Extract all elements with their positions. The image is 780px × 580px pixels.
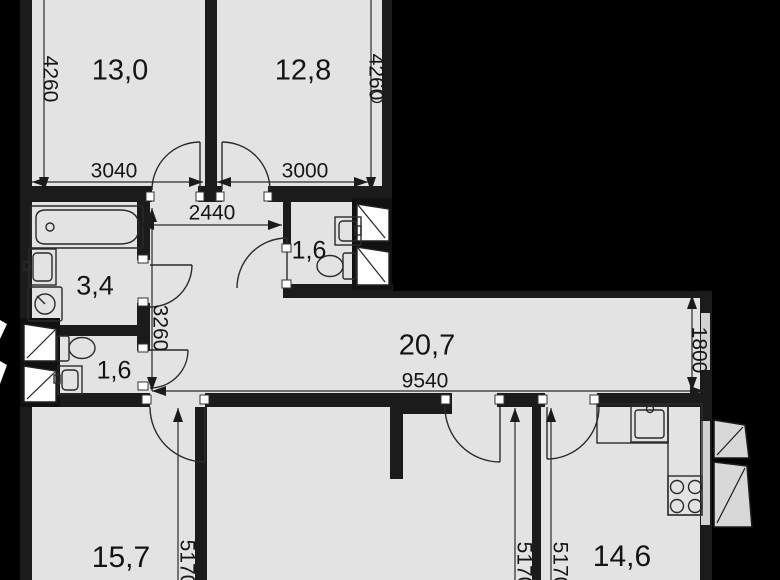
room-label-bedroom3: 15,7 [92, 543, 150, 573]
room-label-kitchen: 14,6 [593, 542, 651, 572]
dim-kitchen-depth: 5170 [550, 542, 571, 580]
dim-bedroom1-width: 3040 [91, 161, 138, 182]
floor-plan-drawing [0, 0, 780, 580]
room-label-bedroom2: 12,8 [275, 57, 331, 86]
dim-bedroom3-depth: 5170 [177, 540, 198, 580]
dim-hall-depth: 3260 [150, 305, 171, 352]
room-label-bathroom: 3,4 [76, 273, 114, 300]
room-label-wc-top: 1,6 [292, 239, 327, 264]
dim-living-depth: 1800 [689, 327, 710, 374]
room-label-wc-bottom: 1,6 [97, 359, 132, 384]
dim-bedroom1-depth: 4260 [40, 56, 61, 103]
dim-bedroom2-depth: 4260 [366, 54, 387, 101]
room-label-living: 20,7 [399, 332, 455, 361]
room-label-bedroom1: 13,0 [92, 57, 148, 86]
dim-middle-room-depth: 5170 [514, 542, 535, 580]
dim-hall-width: 2440 [189, 203, 236, 224]
floor-plan-image: 13,0 12,8 1,6 3,4 1,6 20,7 15,7 14,6 426… [0, 0, 780, 580]
dim-bedroom2-width: 3000 [282, 161, 329, 182]
dim-living-length: 9540 [402, 371, 449, 392]
